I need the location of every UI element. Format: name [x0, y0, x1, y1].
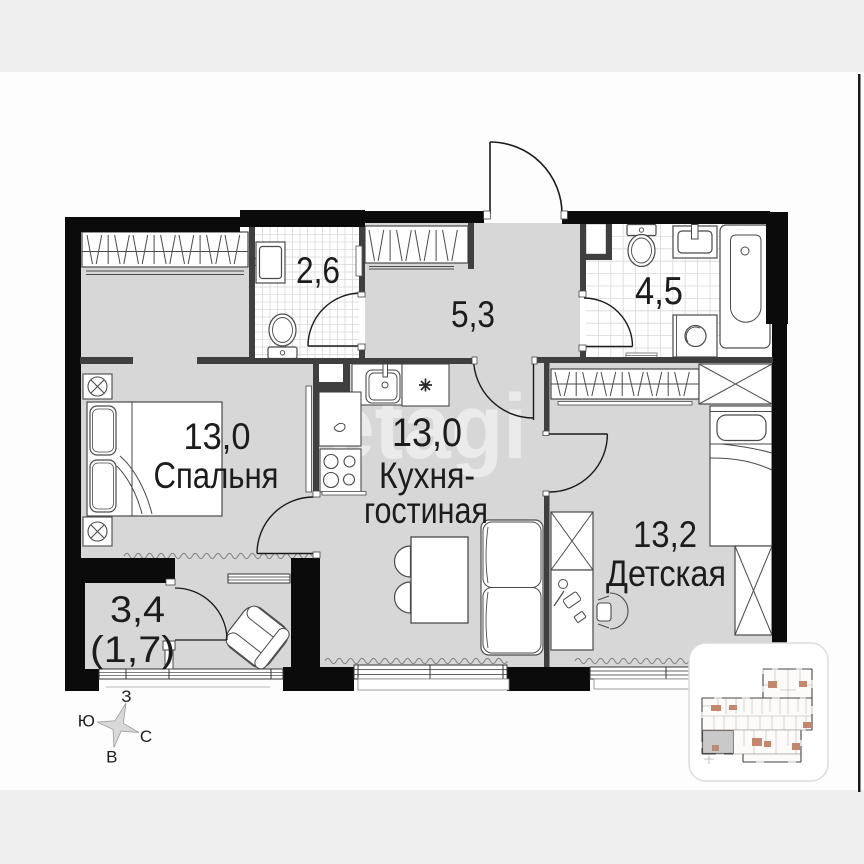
- svg-text:Детская: Детская: [606, 553, 726, 594]
- svg-text:Ю: Ю: [78, 712, 95, 731]
- svg-text:гостиная: гостиная: [364, 490, 488, 531]
- svg-text:2,6: 2,6: [296, 250, 340, 291]
- svg-text:(1,7): (1,7): [90, 629, 175, 670]
- svg-text:С: С: [140, 727, 152, 746]
- svg-text:5,3: 5,3: [451, 294, 495, 335]
- svg-text:В: В: [106, 748, 117, 767]
- svg-text:13,0: 13,0: [184, 416, 251, 457]
- svg-text:З: З: [121, 687, 131, 706]
- svg-text:13,2: 13,2: [633, 514, 697, 555]
- svg-text:Спальня: Спальня: [154, 455, 279, 496]
- svg-text:3,4: 3,4: [110, 589, 165, 630]
- svg-text:13,0: 13,0: [392, 411, 462, 455]
- svg-text:4,5: 4,5: [635, 270, 683, 313]
